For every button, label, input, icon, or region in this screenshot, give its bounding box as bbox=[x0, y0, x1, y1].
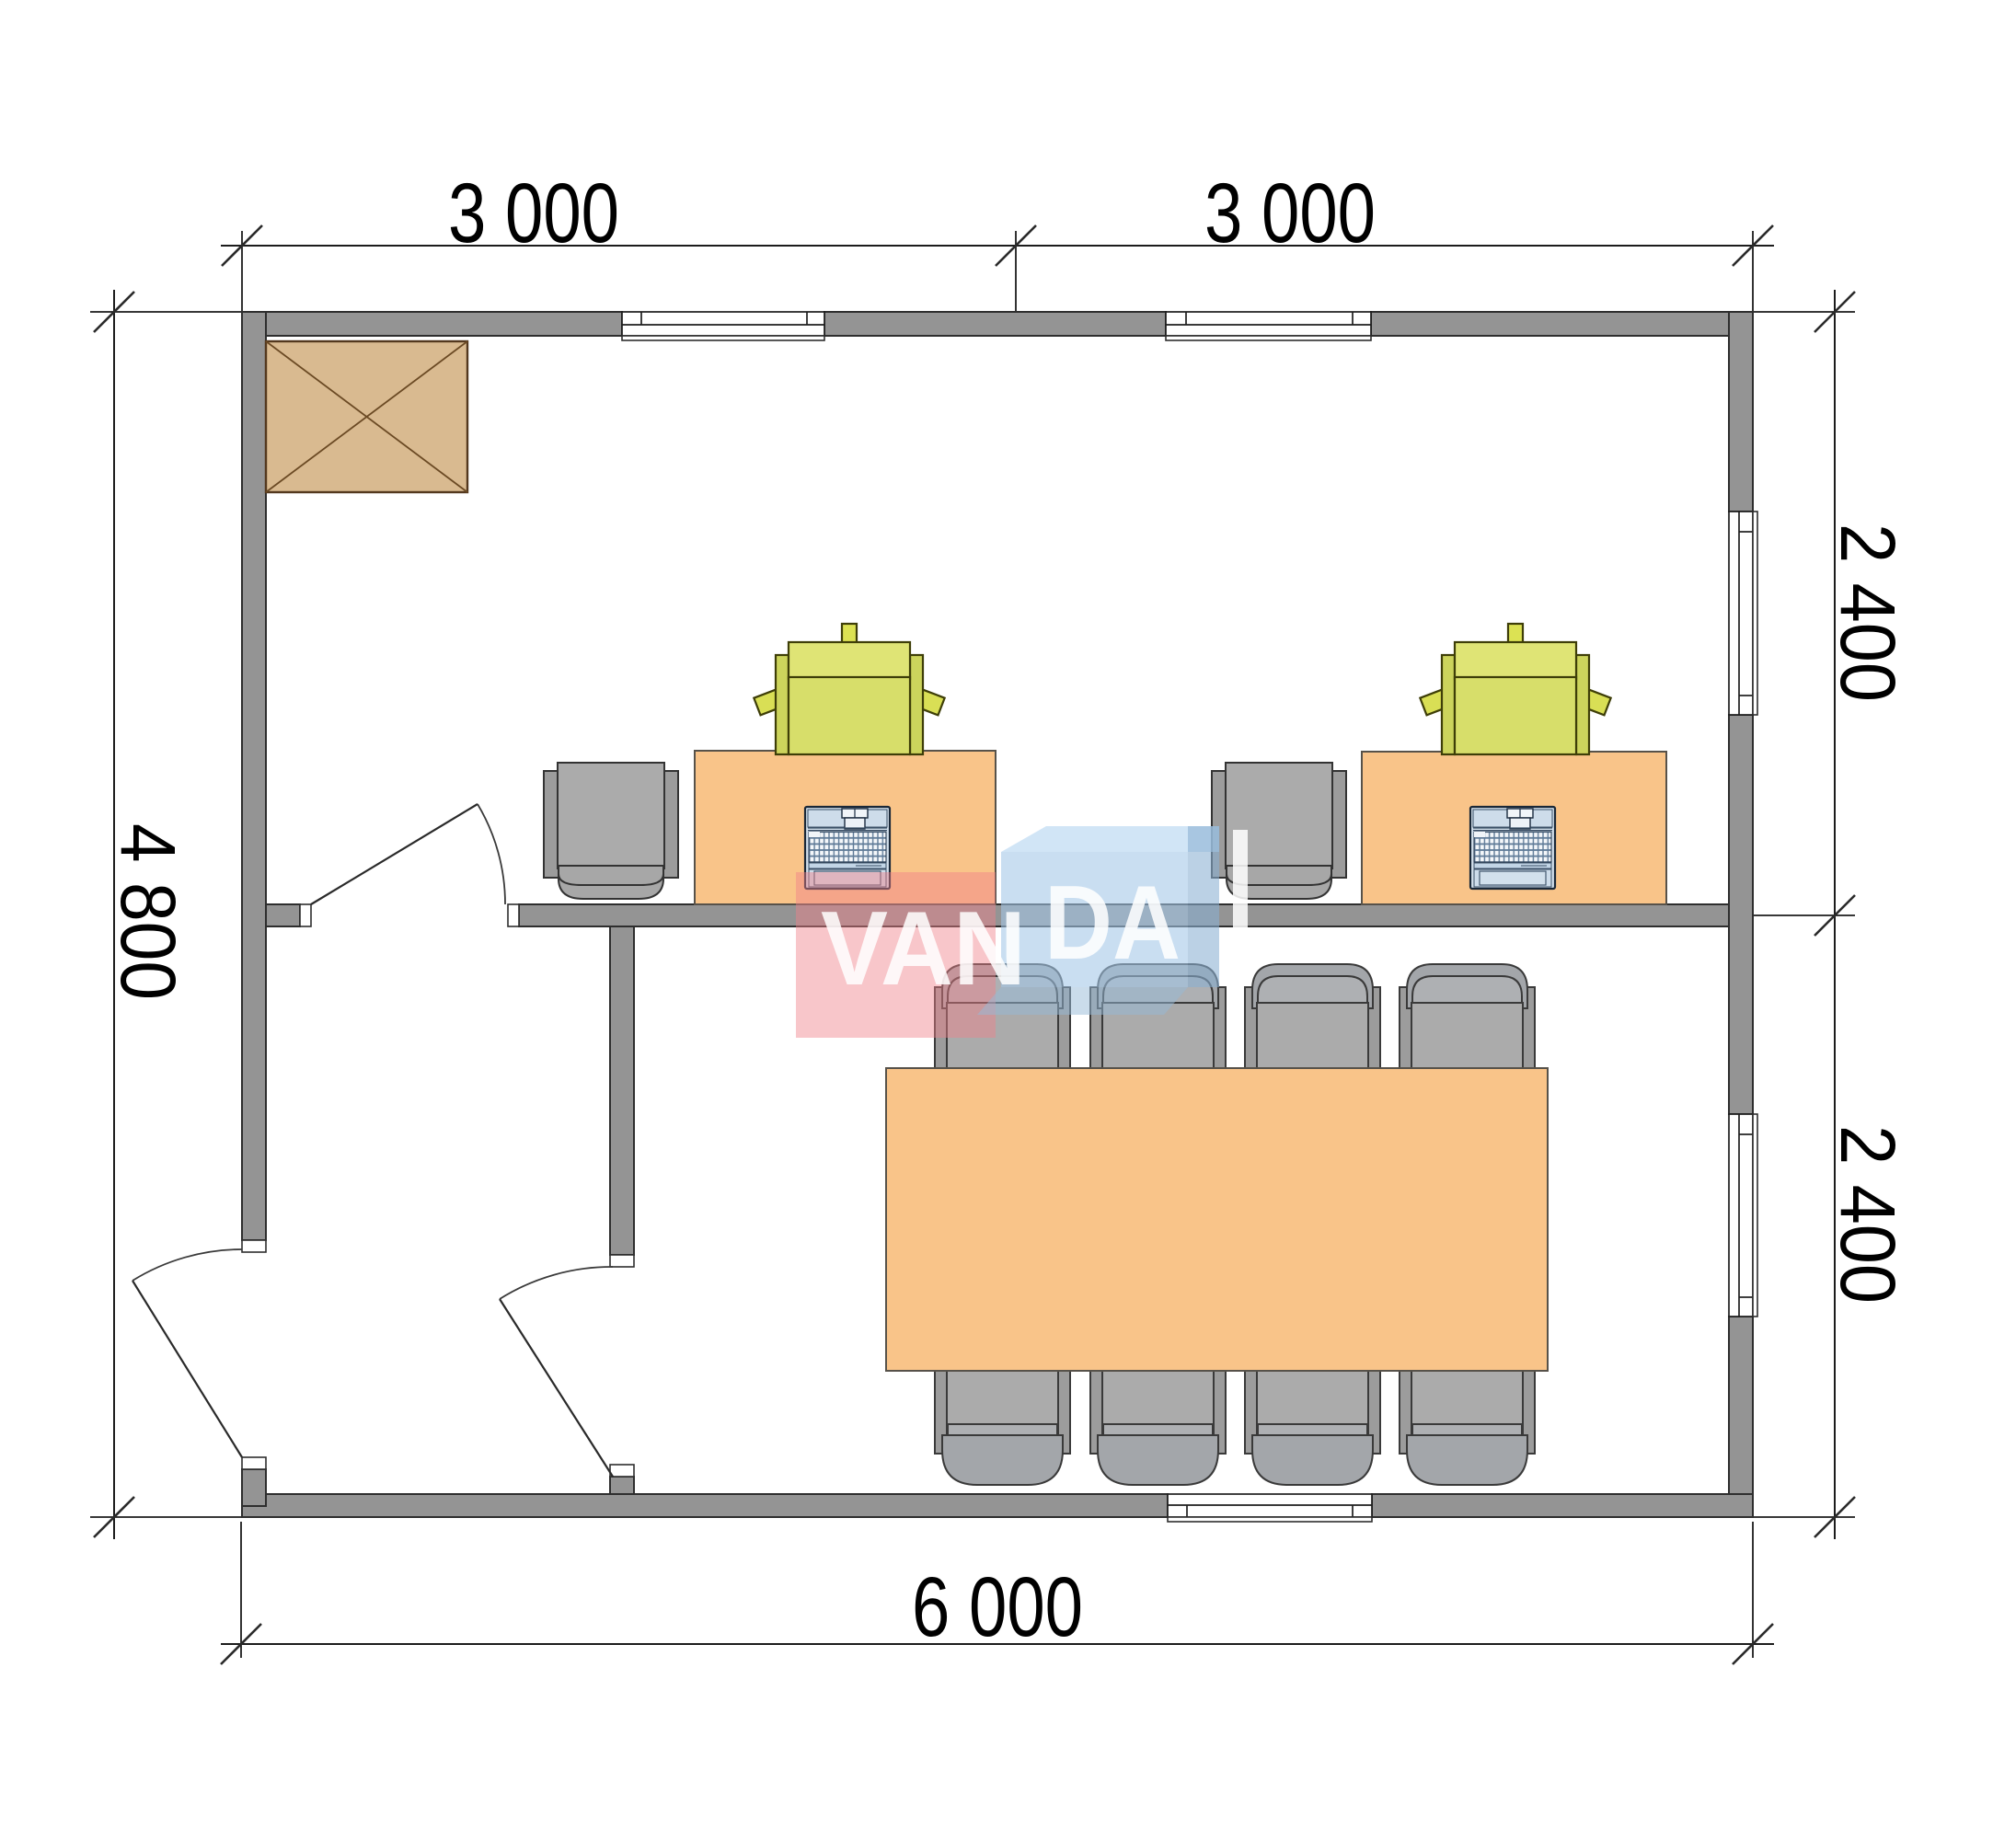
svg-text:2 400: 2 400 bbox=[1825, 523, 1911, 702]
svg-text:DA: DA bbox=[1044, 865, 1181, 982]
svg-text:VAN: VAN bbox=[821, 891, 1026, 1007]
svg-text:3 000: 3 000 bbox=[448, 167, 619, 260]
svg-text:6 000: 6 000 bbox=[912, 1560, 1083, 1654]
svg-text:4 800: 4 800 bbox=[105, 823, 191, 1000]
svg-text:2 400: 2 400 bbox=[1825, 1125, 1911, 1304]
svg-text:3 000: 3 000 bbox=[1204, 167, 1376, 260]
